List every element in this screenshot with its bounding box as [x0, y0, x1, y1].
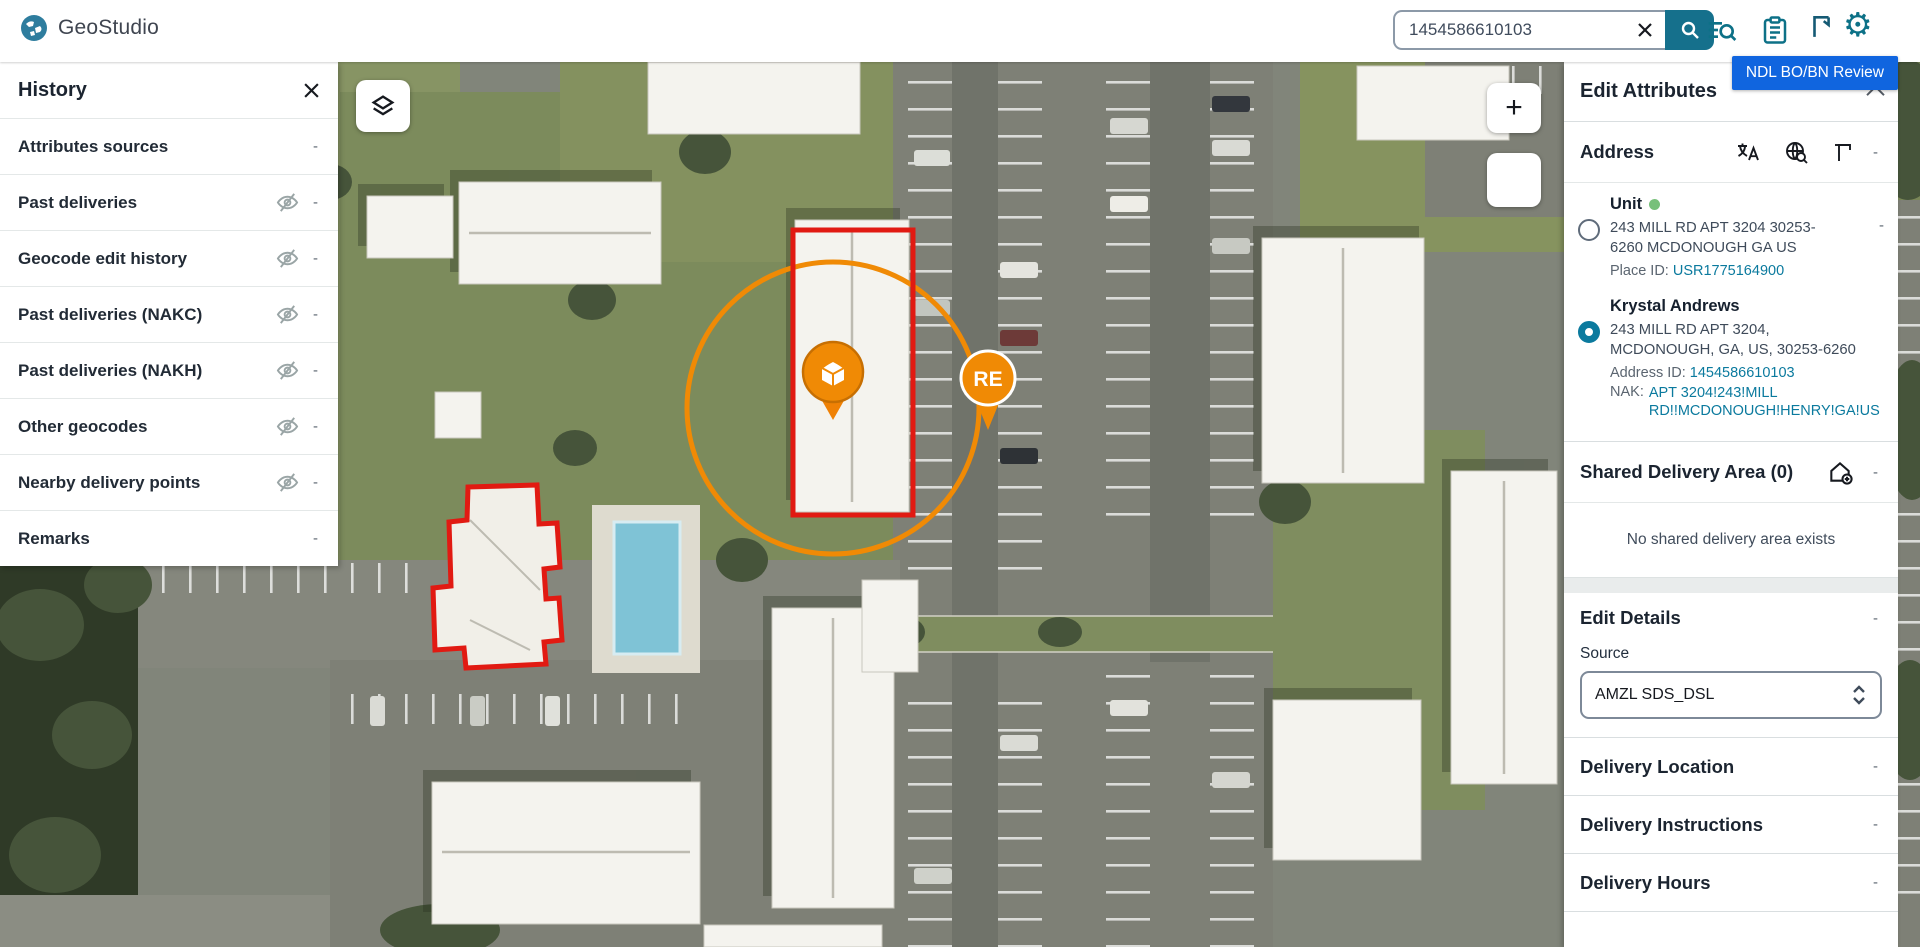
expand-toggle[interactable]: -	[1869, 874, 1882, 891]
edit-attributes-panel: Edit Attributes Address -	[1564, 62, 1898, 947]
unit-address-text: 243 MILL RD APT 3204 30253-6260 MCDONOUG…	[1610, 218, 1842, 259]
history-item-past-deliveries[interactable]: Past deliveries -	[0, 174, 338, 230]
visibility-off-icon[interactable]	[276, 415, 299, 438]
search-list-icon	[1705, 14, 1739, 46]
expand-toggle[interactable]: -	[309, 194, 322, 211]
expand-toggle[interactable]: -	[309, 474, 322, 491]
history-item-geocode-edit-history[interactable]: Geocode edit history -	[0, 230, 338, 286]
expand-toggle[interactable]: -	[309, 362, 322, 379]
expand-toggle[interactable]: -	[1869, 816, 1882, 833]
expand-toggle[interactable]: -	[309, 418, 322, 435]
history-item-past-deliveries-nakc[interactable]: Past deliveries (NAKC) -	[0, 286, 338, 342]
history-item-nearby-delivery-points[interactable]: Nearby delivery points -	[0, 454, 338, 510]
layers-icon	[369, 92, 397, 120]
top-bar: GeoStudio	[0, 0, 1920, 62]
review-mode-badge: NDL BO/BN Review	[1732, 56, 1898, 90]
visibility-off-icon[interactable]	[276, 471, 299, 494]
expand-toggle[interactable]: -	[1869, 144, 1882, 161]
svg-text:RE: RE	[973, 368, 1002, 391]
history-item-other-geocodes[interactable]: Other geocodes -	[0, 398, 338, 454]
expand-toggle[interactable]: -	[1869, 464, 1882, 481]
app-logo: GeoStudio	[20, 14, 159, 42]
status-dot-green	[1649, 199, 1660, 210]
map-layers-button[interactable]	[356, 80, 410, 132]
visibility-off-icon[interactable]	[276, 191, 299, 214]
close-icon	[1637, 22, 1653, 38]
plus-icon: +	[1505, 91, 1523, 125]
address-option-customer[interactable]: Krystal Andrews 243 MILL RD APT 3204, MC…	[1564, 285, 1898, 428]
select-caret-icon	[1851, 684, 1867, 706]
source-label: Source	[1580, 645, 1882, 663]
radio-unselected[interactable]	[1578, 219, 1600, 241]
nak-link[interactable]: APT 3204!243!MILL RD!!MCDONOUGH!HENRY!GA…	[1649, 384, 1849, 422]
map-zoom-out-button[interactable]	[1487, 153, 1541, 207]
source-select[interactable]: AMZL SDS_DSL	[1580, 671, 1882, 719]
section-delivery-hours[interactable]: Delivery Hours -	[1564, 853, 1898, 911]
search-bar	[1393, 10, 1714, 50]
history-close-button[interactable]	[303, 82, 320, 99]
geostudio-app: RE + GeoStudio	[0, 0, 1920, 947]
radio-selected[interactable]	[1578, 321, 1600, 343]
translate-icon[interactable]	[1735, 140, 1761, 164]
edit-details-title: Edit Details	[1580, 607, 1869, 629]
app-name: GeoStudio	[58, 16, 159, 40]
settings-button[interactable]: ⚙	[1843, 8, 1873, 41]
history-item-remarks[interactable]: Remarks -	[0, 510, 338, 566]
source-value: AMZL SDS_DSL	[1595, 686, 1851, 704]
expand-toggle[interactable]: -	[1875, 217, 1888, 279]
address-section-title: Address	[1580, 141, 1735, 163]
customer-address-text: 243 MILL RD APT 3204, MCDONOUGH, GA, US,…	[1610, 320, 1862, 361]
add-shared-area-button[interactable]	[1827, 459, 1853, 485]
bookmark-button[interactable]	[1808, 12, 1834, 45]
house-add-icon	[1827, 459, 1853, 485]
section-delivery-location[interactable]: Delivery Location -	[1564, 737, 1898, 795]
visibility-off-icon[interactable]	[276, 247, 299, 270]
expand-toggle[interactable]: -	[309, 138, 322, 155]
place-id-link[interactable]: USR1775164900	[1673, 263, 1784, 279]
search-records-button[interactable]	[1705, 14, 1739, 51]
section-next-clipped	[1564, 911, 1898, 947]
gear-icon: ⚙	[1843, 6, 1873, 43]
expand-toggle[interactable]: -	[1869, 758, 1882, 775]
tasks-button[interactable]	[1760, 14, 1790, 51]
expand-toggle[interactable]: -	[309, 306, 322, 323]
search-icon	[1680, 20, 1700, 40]
expand-toggle[interactable]: -	[309, 250, 322, 267]
close-icon	[303, 82, 320, 99]
globe-icon	[20, 14, 48, 42]
bookmark-icon	[1808, 12, 1834, 40]
globe-search-icon[interactable]	[1783, 140, 1809, 164]
history-panel: History Attributes sources - Past delive…	[0, 62, 338, 566]
search-input[interactable]	[1393, 10, 1625, 50]
visibility-off-icon[interactable]	[276, 359, 299, 382]
visibility-off-icon[interactable]	[276, 303, 299, 326]
history-panel-title: History	[18, 79, 303, 102]
address-option-unit[interactable]: Unit 243 MILL RD APT 3204 30253-6260 MCD…	[1564, 183, 1898, 285]
clipboard-icon	[1760, 14, 1790, 46]
search-clear-button[interactable]	[1625, 10, 1665, 50]
section-delivery-instructions[interactable]: Delivery Instructions -	[1564, 795, 1898, 853]
expand-toggle[interactable]: -	[309, 530, 322, 547]
shared-delivery-title: Shared Delivery Area (0)	[1580, 461, 1827, 483]
map-zoom-in-button[interactable]: +	[1487, 83, 1541, 133]
address-id-link[interactable]: 1454586610103	[1690, 365, 1795, 381]
expand-toggle[interactable]: -	[1869, 610, 1882, 627]
section-separator	[1564, 577, 1898, 593]
polygon-corner-icon[interactable]	[1831, 140, 1855, 164]
history-item-past-deliveries-nakh[interactable]: Past deliveries (NAKH) -	[0, 342, 338, 398]
history-item-attributes-sources[interactable]: Attributes sources -	[0, 118, 338, 174]
shared-delivery-empty-text: No shared delivery area exists	[1564, 503, 1898, 577]
